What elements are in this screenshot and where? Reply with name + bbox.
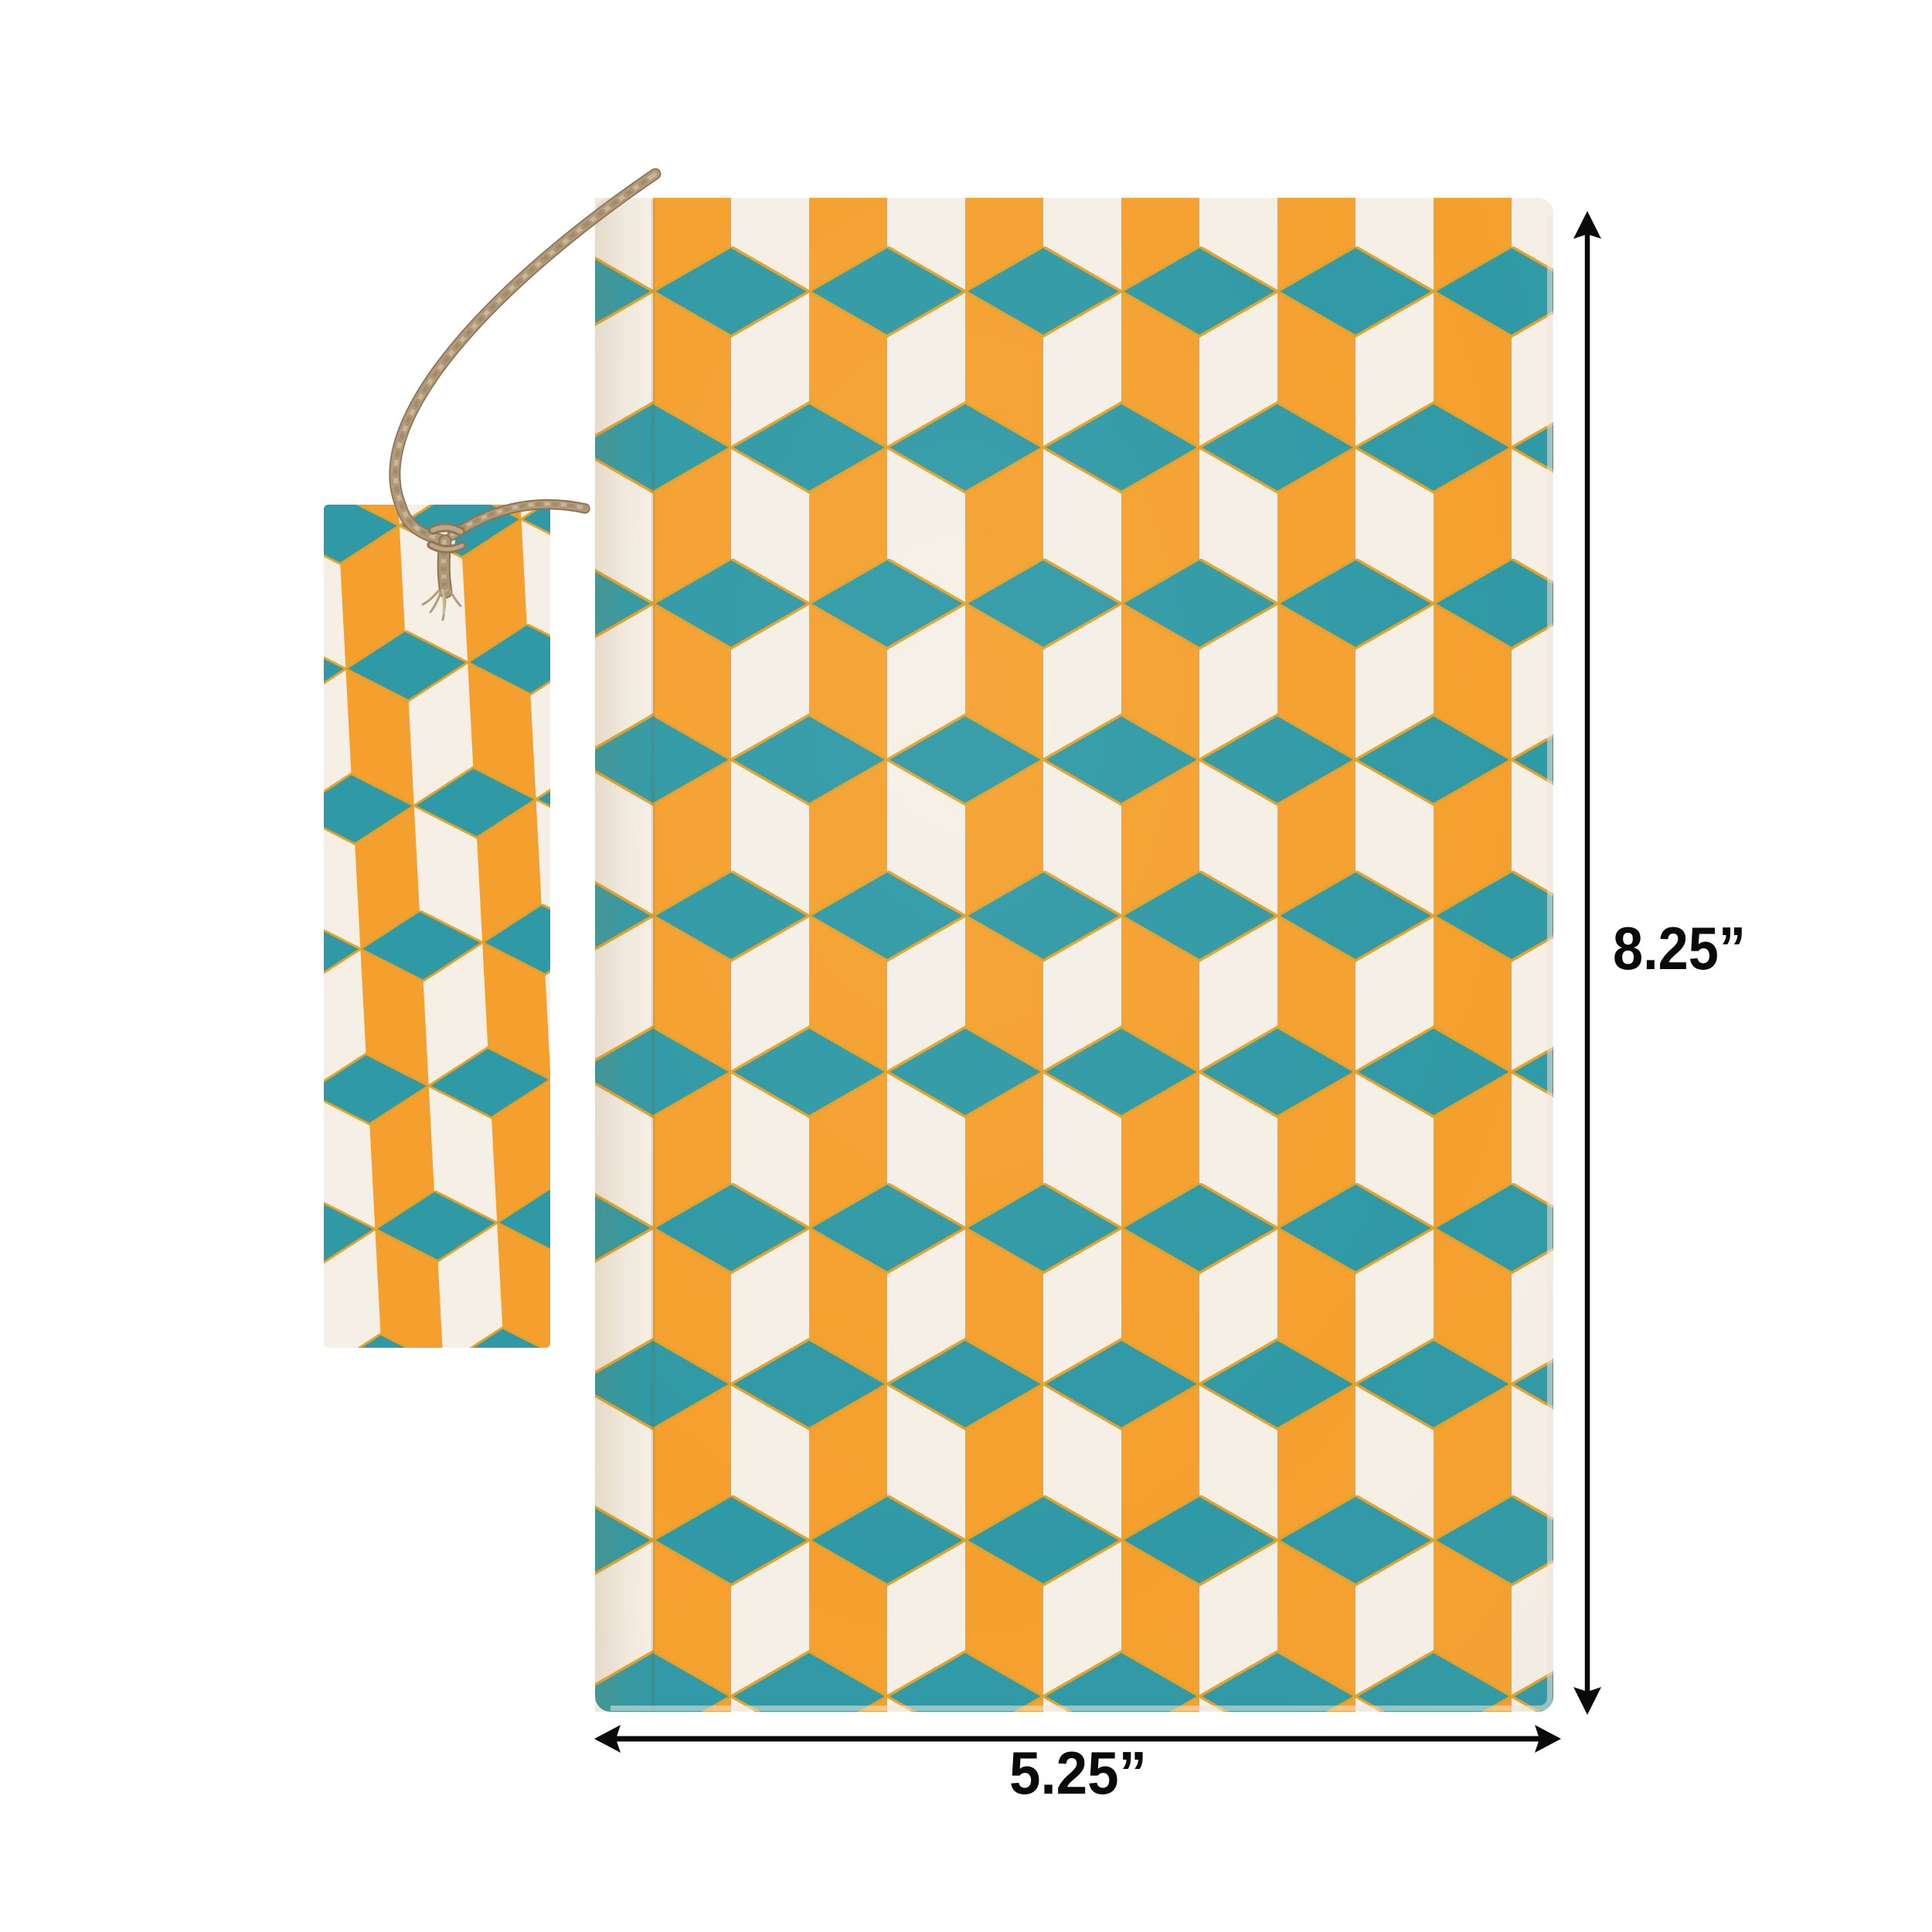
svg-text:5.25”: 5.25” — [1009, 1739, 1147, 1807]
svg-text:8.25”: 8.25” — [1613, 914, 1746, 982]
